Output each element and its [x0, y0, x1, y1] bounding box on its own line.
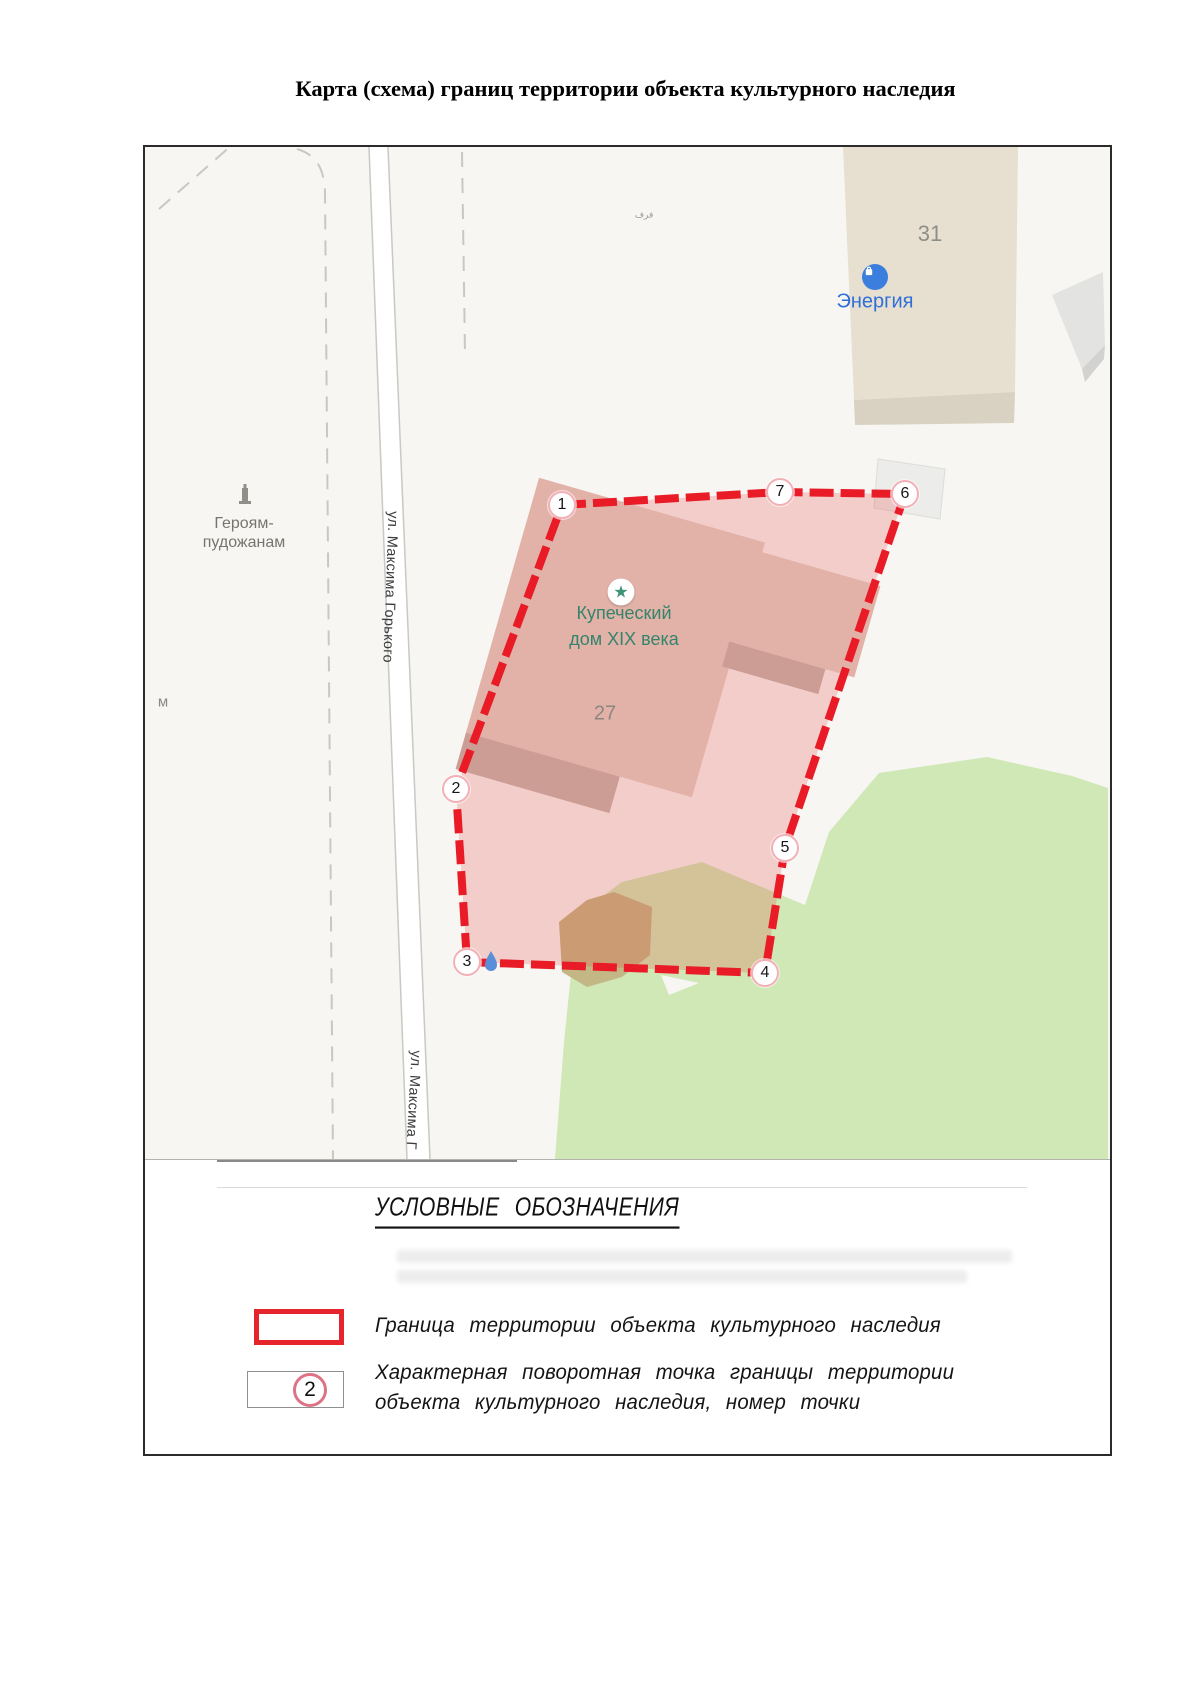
- legend-point-circle: 2: [293, 1373, 327, 1407]
- map-point-2[interactable]: 2: [442, 775, 470, 803]
- point-number: 3: [463, 954, 472, 970]
- point-number: 2: [452, 781, 461, 797]
- faded-text-artifact: [397, 1250, 1012, 1263]
- legend-point-symbol: 2: [247, 1371, 344, 1408]
- legend-point-label-line2: объекта культурного наследия, номер точк…: [375, 1389, 860, 1417]
- document-page: Карта (схема) границ территории объекта …: [0, 0, 1200, 1697]
- clipped-edge-label: м: [158, 694, 168, 711]
- building-31-number: 31: [918, 221, 942, 247]
- separator-rule: [217, 1187, 1027, 1188]
- heritage-object-label[interactable]: Купеческий дом XIX века: [569, 600, 679, 652]
- faded-text-artifact: [397, 1270, 967, 1283]
- map-canvas[interactable]: ул. Максима Горького ул. Максима Г Героя…: [145, 147, 1110, 1160]
- heritage-name-line2: дом XIX века: [569, 626, 679, 652]
- map-point-3[interactable]: 3: [453, 948, 481, 976]
- point-number: 1: [558, 497, 567, 513]
- point-number: 5: [781, 840, 790, 856]
- document-frame: ул. Максима Горького ул. Максима Г Героя…: [143, 145, 1112, 1456]
- small-map-glyph: فرف: [635, 210, 654, 221]
- map-shapes: [145, 147, 1110, 1159]
- monument-label[interactable]: Героям- пудожанам: [203, 514, 286, 552]
- map-point-6[interactable]: 6: [891, 480, 919, 508]
- page-title: Карта (схема) границ территории объекта …: [143, 76, 1108, 102]
- shop-bag-icon[interactable]: [862, 264, 888, 290]
- legend-boundary-label: Граница территории объекта культурного н…: [375, 1308, 941, 1344]
- map-point-5[interactable]: 5: [771, 834, 799, 862]
- heritage-name-line1: Купеческий: [569, 600, 679, 626]
- map-point-7[interactable]: 7: [766, 478, 794, 506]
- map-point-4[interactable]: 4: [751, 959, 779, 987]
- point-number: 6: [901, 486, 910, 502]
- building-27-number: 27: [594, 703, 616, 726]
- bag-glyph: [862, 264, 876, 278]
- point-number: 7: [776, 484, 785, 500]
- legend-heading: УСЛОВНЫЕ ОБОЗНАЧЕНИЯ: [375, 1193, 679, 1229]
- legend-boundary-symbol: [254, 1309, 344, 1345]
- point-number: 4: [761, 965, 770, 981]
- shop-label[interactable]: Энергия: [837, 291, 914, 314]
- map-point-1[interactable]: 1: [548, 491, 576, 519]
- map-edge-artifact: [217, 1160, 517, 1162]
- legend-point-label-line1: Характерная поворотная точка границы тер…: [375, 1359, 954, 1387]
- star-glyph: ★: [613, 584, 628, 601]
